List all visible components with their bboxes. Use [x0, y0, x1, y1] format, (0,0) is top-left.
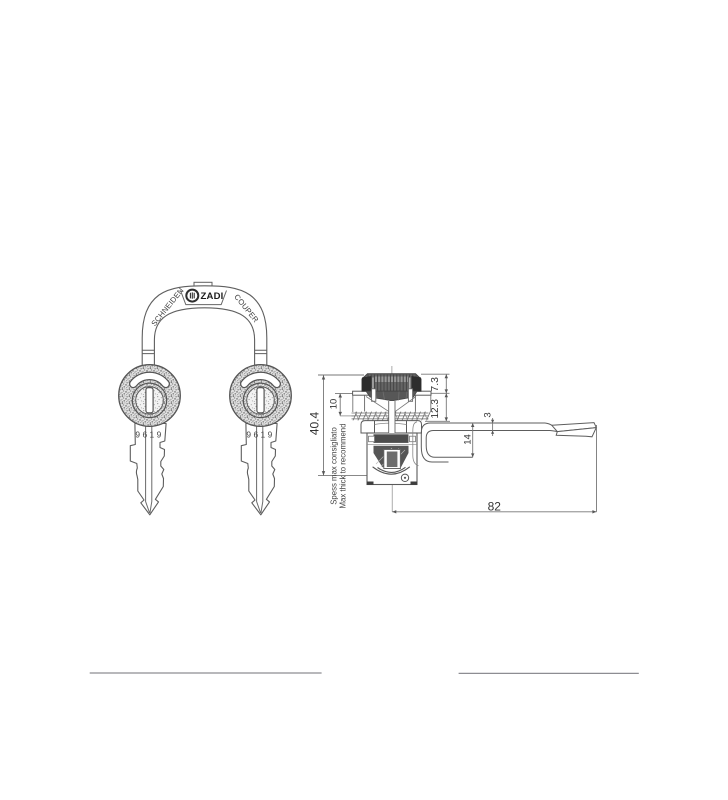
- svg-text:7.3: 7.3: [429, 377, 441, 392]
- svg-text:Max thick to recommend: Max thick to recommend: [339, 424, 348, 509]
- svg-text:12.3: 12.3: [430, 399, 441, 419]
- svg-text:82: 82: [488, 499, 502, 513]
- svg-text:9619: 9619: [135, 429, 163, 439]
- svg-text:10: 10: [329, 399, 340, 410]
- svg-text:Spess max consigliato: Spess max consigliato: [330, 427, 339, 505]
- svg-text:ZADI: ZADI: [201, 291, 224, 302]
- svg-text:40.4: 40.4: [308, 411, 322, 435]
- svg-text:3: 3: [483, 412, 494, 417]
- svg-text:14: 14: [463, 434, 474, 445]
